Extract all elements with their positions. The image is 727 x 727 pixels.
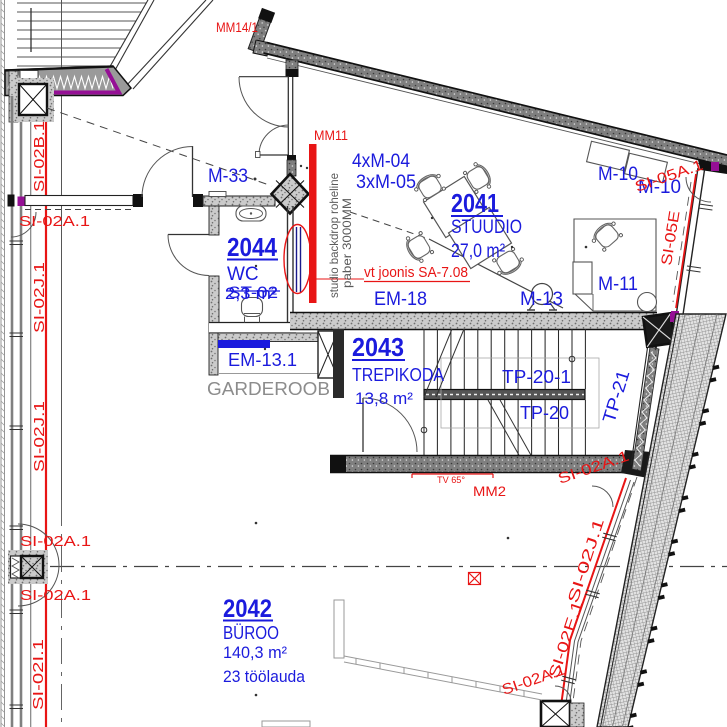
svg-text:vt joonis SA-7.08: vt joonis SA-7.08	[364, 264, 468, 281]
svg-text:M-13: M-13	[520, 289, 563, 310]
svg-text:EM-13.1: EM-13.1	[228, 350, 297, 370]
svg-text:SI-02A.1: SI-02A.1	[19, 213, 90, 230]
svg-text:13,8 m²: 13,8 m²	[355, 389, 413, 408]
svg-text:TREPIKODA: TREPIKODA	[352, 365, 444, 385]
svg-text:SI-02A.1: SI-02A.1	[20, 533, 91, 550]
svg-text:SI-02B.1: SI-02B.1	[31, 121, 48, 192]
svg-text:ST-02: ST-02	[228, 283, 278, 302]
svg-text:M-11: M-11	[598, 274, 638, 295]
svg-text:140,3 m²: 140,3 m²	[223, 643, 287, 662]
svg-text:SI-02I.1: SI-02I.1	[30, 639, 47, 710]
svg-text:2042: 2042	[223, 595, 272, 623]
svg-text:STUUDIO: STUUDIO	[451, 217, 522, 238]
svg-text:MM2: MM2	[473, 483, 506, 499]
svg-text:SI-02A.1: SI-02A.1	[20, 587, 91, 604]
svg-text:BÜROO: BÜROO	[223, 623, 279, 643]
svg-text:27,0 m²: 27,0 m²	[451, 241, 505, 262]
svg-text:EM-18: EM-18	[374, 289, 427, 310]
svg-text:4xM-04: 4xM-04	[352, 151, 410, 172]
svg-text:M-33: M-33	[208, 166, 248, 187]
svg-text:23 töölauda: 23 töölauda	[223, 667, 305, 686]
svg-text:M-10: M-10	[598, 164, 638, 185]
svg-text:MM11: MM11	[314, 128, 348, 143]
svg-text:SI-02J.1: SI-02J.1	[31, 401, 48, 472]
svg-text:TP-20-1: TP-20-1	[502, 367, 571, 387]
svg-text:2043: 2043	[352, 332, 404, 362]
svg-text:GARDEROOB: GARDEROOB	[207, 379, 330, 399]
svg-text:TV 65°: TV 65°	[437, 475, 465, 485]
svg-text:paber 3000MM: paber 3000MM	[340, 198, 354, 288]
svg-text:studio backdrop roheline: studio backdrop roheline	[327, 173, 341, 298]
svg-text:WC: WC	[227, 264, 259, 285]
svg-text:SI-02J.1: SI-02J.1	[31, 262, 48, 333]
svg-text:2044: 2044	[227, 232, 277, 262]
svg-text:2041: 2041	[451, 188, 499, 218]
svg-text:3xM-05: 3xM-05	[356, 172, 416, 193]
svg-text:TP-20: TP-20	[520, 403, 569, 423]
svg-text:MM14/1: MM14/1	[216, 20, 258, 35]
